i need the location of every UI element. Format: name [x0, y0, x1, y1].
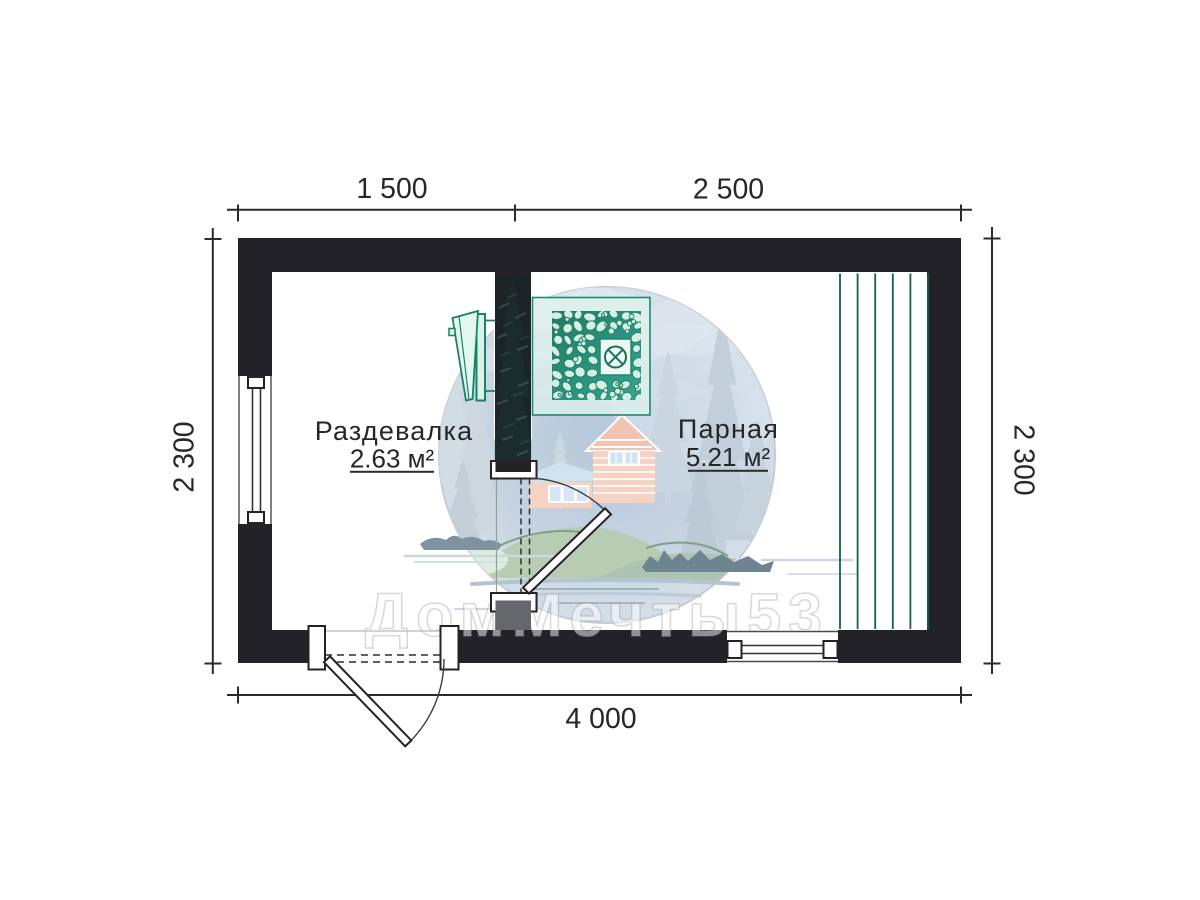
svg-text:5.21 м²: 5.21 м²	[686, 442, 771, 472]
svg-text:1 500: 1 500	[356, 173, 427, 205]
svg-text:2.63 м²: 2.63 м²	[350, 444, 435, 474]
svg-text:2 500: 2 500	[693, 174, 764, 206]
svg-text:Раздевалка: Раздевалка	[315, 416, 474, 446]
svg-text:4 000: 4 000	[565, 703, 636, 735]
svg-text:2 300: 2 300	[1008, 424, 1040, 495]
svg-text:Парная: Парная	[678, 414, 779, 444]
svg-text:2 300: 2 300	[169, 421, 201, 492]
